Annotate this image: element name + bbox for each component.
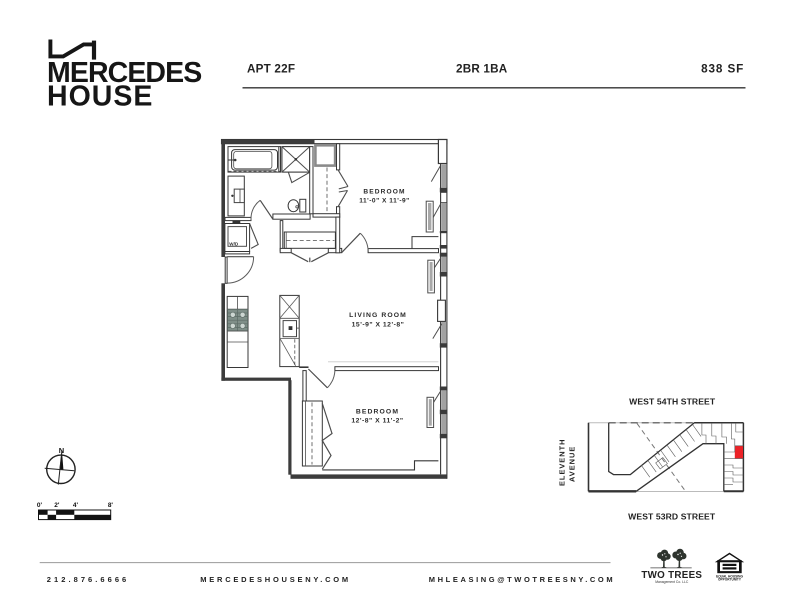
svg-text:15'-9" X 12'-8": 15'-9" X 12'-8" — [352, 322, 405, 329]
svg-text:BEDROOM: BEDROOM — [363, 188, 405, 195]
svg-text:838 SF: 838 SF — [701, 63, 744, 76]
svg-text:4': 4' — [73, 502, 79, 509]
svg-text:8': 8' — [108, 502, 114, 509]
svg-text:11'-0" X 11'-9": 11'-0" X 11'-9" — [359, 198, 410, 205]
svg-text:ELEVENTH: ELEVENTH — [558, 439, 567, 486]
svg-text:N: N — [59, 446, 64, 455]
svg-text:WEST 53RD STREET: WEST 53RD STREET — [628, 511, 716, 521]
svg-text:12'-8" X 11'-2": 12'-8" X 11'-2" — [351, 417, 403, 424]
svg-text:Management Co. LLC: Management Co. LLC — [655, 580, 689, 584]
svg-text:212.876.6666: 212.876.6666 — [47, 575, 129, 584]
svg-text:2': 2' — [54, 502, 60, 509]
svg-text:LIVING ROOM: LIVING ROOM — [349, 312, 407, 319]
svg-text:AVENUE: AVENUE — [568, 446, 577, 482]
svg-text:0': 0' — [37, 502, 43, 509]
svg-text:HOUSE: HOUSE — [47, 81, 153, 113]
svg-text:W/D: W/D — [229, 242, 239, 247]
svg-text:2BR 1BA: 2BR 1BA — [456, 63, 508, 76]
svg-text:WEST 54TH STREET: WEST 54TH STREET — [629, 396, 716, 406]
svg-text:BEDROOM: BEDROOM — [356, 408, 399, 415]
svg-text:MERCEDESHOUSENY.COM: MERCEDESHOUSENY.COM — [200, 575, 351, 584]
svg-text:APT 22F: APT 22F — [247, 63, 295, 76]
svg-text:MHLEASING@TWOTREESNY.COM: MHLEASING@TWOTREESNY.COM — [429, 575, 615, 584]
svg-text:OPPORTUNITY: OPPORTUNITY — [718, 578, 742, 582]
